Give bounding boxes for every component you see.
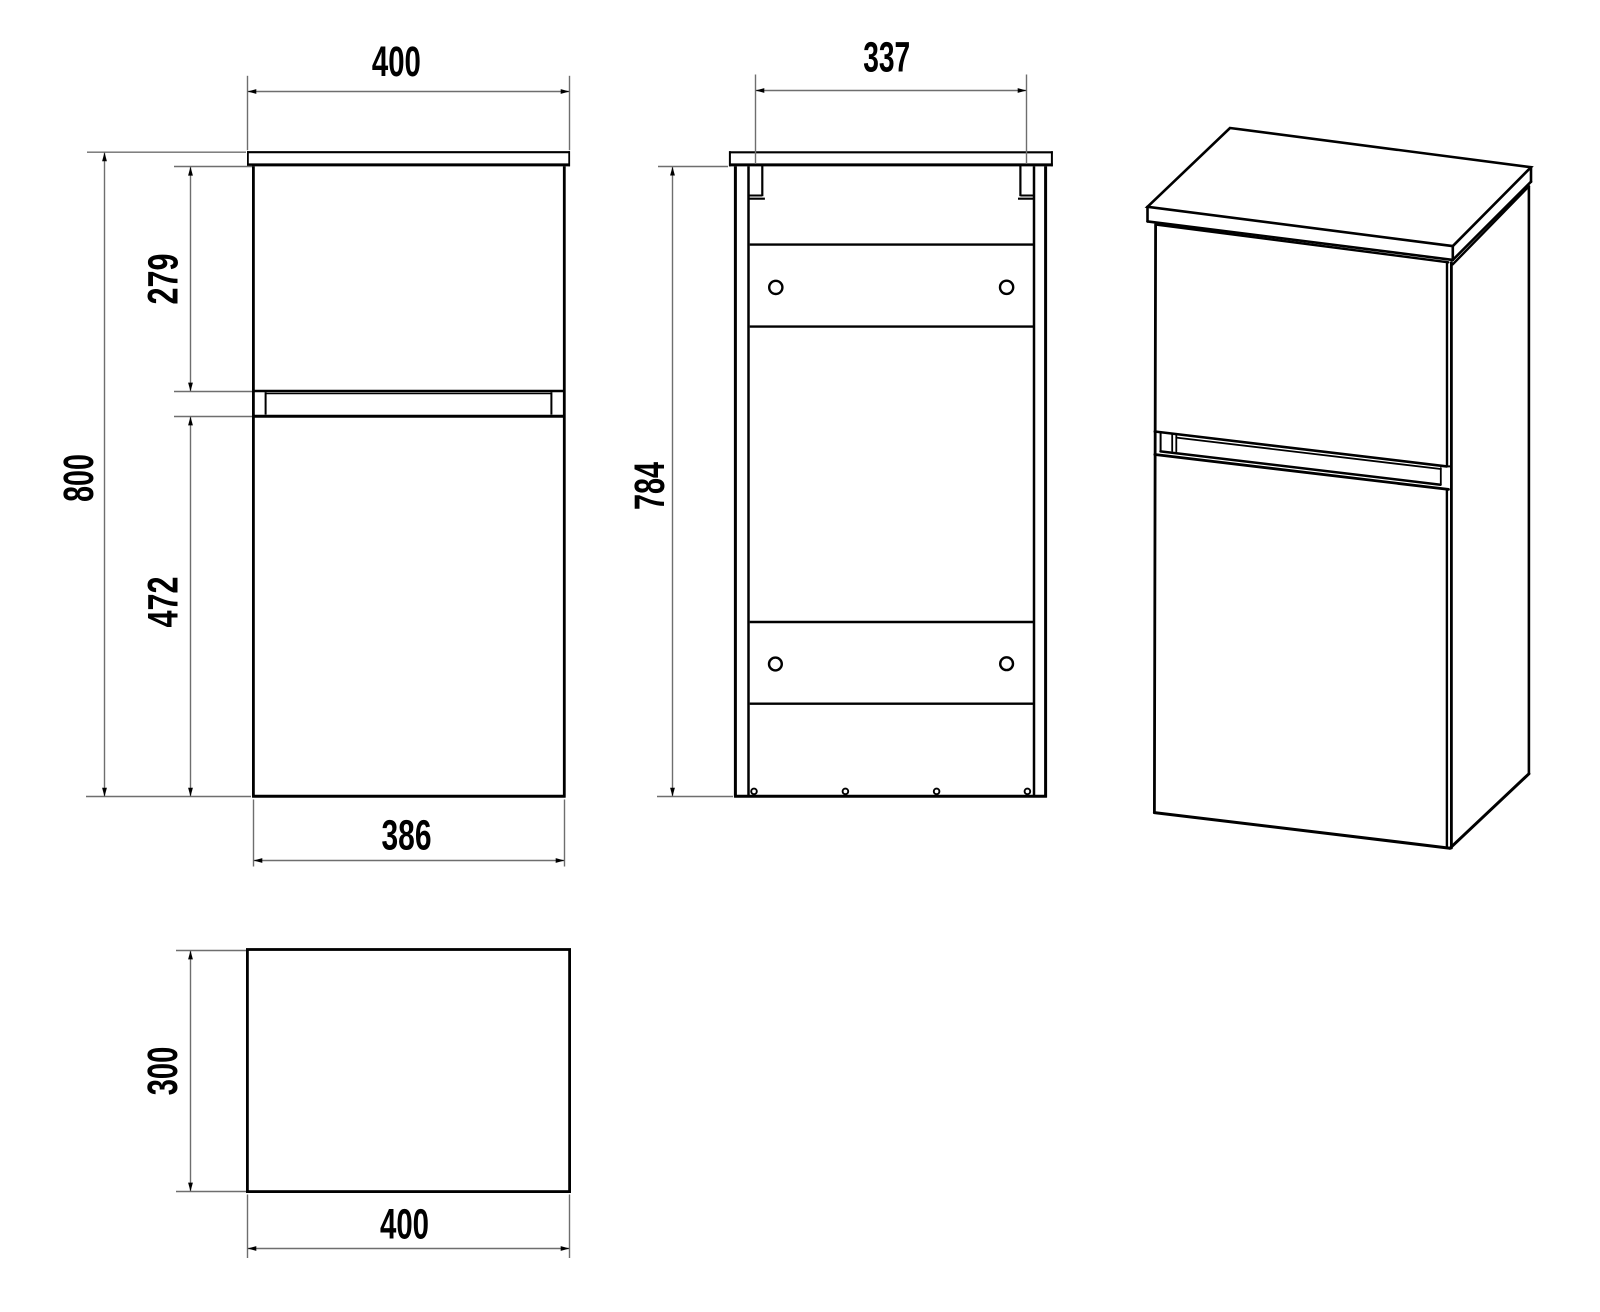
- svg-text:400: 400: [372, 38, 421, 86]
- svg-text:400: 400: [380, 1201, 429, 1249]
- svg-text:300: 300: [139, 1047, 187, 1096]
- svg-text:279: 279: [140, 254, 188, 305]
- svg-text:337: 337: [863, 34, 910, 82]
- svg-text:472: 472: [140, 577, 188, 628]
- svg-text:784: 784: [626, 462, 674, 510]
- svg-text:800: 800: [55, 454, 103, 502]
- svg-text:386: 386: [382, 812, 432, 860]
